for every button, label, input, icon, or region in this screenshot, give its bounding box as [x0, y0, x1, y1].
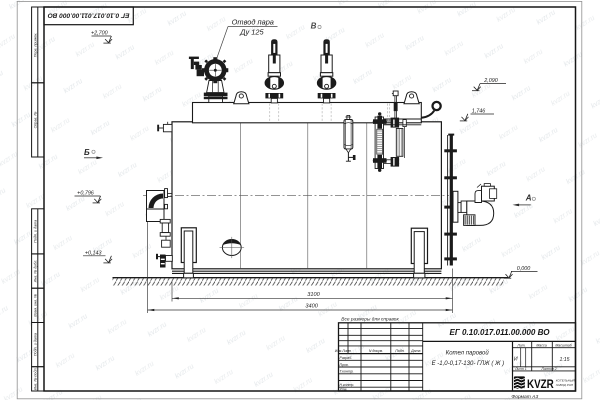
svg-text:Взам. инв. №: Взам. инв. №: [34, 294, 38, 317]
svg-text:Т.контр.: Т.контр.: [340, 370, 354, 374]
svg-text:Отвод пара: Отвод пара: [232, 18, 274, 27]
svg-text:ЗАВОД РЭП: ЗАВОД РЭП: [556, 383, 574, 387]
svg-text:3400: 3400: [305, 303, 318, 309]
svg-text:Масштаб: Масштаб: [555, 344, 572, 348]
svg-text:ЕГ 0.10.017.011.00.000 ВО: ЕГ 0.10.017.011.00.000 ВО: [450, 328, 551, 337]
svg-text:Масса: Масса: [536, 344, 546, 348]
svg-text:Подп. и дата: Подп. и дата: [34, 333, 38, 356]
svg-text:Разраб.: Разраб.: [340, 356, 353, 360]
svg-text:Формат А3: Формат А3: [511, 394, 538, 400]
svg-text:Листов 2: Листов 2: [540, 367, 556, 371]
svg-text:Ду 125: Ду 125: [239, 28, 264, 37]
svg-text:Изм.Лист: Изм.Лист: [335, 349, 352, 353]
svg-text:Утв.: Утв.: [340, 387, 348, 391]
svg-text:А: А: [525, 194, 532, 203]
svg-text:Инв. № подл.: Инв. № подл.: [34, 367, 38, 390]
svg-text:Подп. и дата: Подп. и дата: [34, 220, 38, 243]
svg-text:Котел паровой: Котел паровой: [446, 349, 490, 356]
svg-text:КОТЕЛЬНЫЙ: КОТЕЛЬНЫЙ: [556, 379, 576, 383]
svg-text:Б: Б: [84, 148, 90, 157]
svg-text:Е -1,0-0,17-130- ГЛЖ ( Ж ): Е -1,0-0,17-130- ГЛЖ ( Ж ): [432, 361, 505, 367]
svg-text:ЕГ 0.10.017.011.00.000 ВО: ЕГ 0.10.017.011.00.000 ВО: [47, 11, 130, 18]
svg-text:Дата: Дата: [410, 349, 420, 353]
svg-text:Лист 1: Лист 1: [514, 367, 527, 371]
svg-text:1:15: 1:15: [559, 357, 569, 363]
svg-text:И: И: [514, 356, 518, 362]
svg-text:Инв. № дубл.: Инв. № дубл.: [34, 260, 38, 283]
svg-text:Все размеры для справок: Все размеры для справок: [341, 317, 399, 323]
svg-text:Справ. №: Справ. №: [34, 112, 38, 129]
svg-text:3100: 3100: [307, 292, 320, 298]
svg-text:Перв. примен.: Перв. примен.: [34, 33, 38, 58]
svg-text:Подп.: Подп.: [395, 349, 404, 353]
svg-text:В: В: [311, 21, 317, 30]
svg-text:KVZR: KVZR: [527, 377, 554, 391]
svg-text:1,746: 1,746: [472, 108, 486, 114]
svg-text:N докум.: N докум.: [369, 349, 383, 353]
svg-text:Пров.: Пров.: [340, 363, 349, 367]
svg-text:2,090: 2,090: [483, 78, 498, 84]
svg-text:Лит.: Лит.: [516, 344, 525, 348]
